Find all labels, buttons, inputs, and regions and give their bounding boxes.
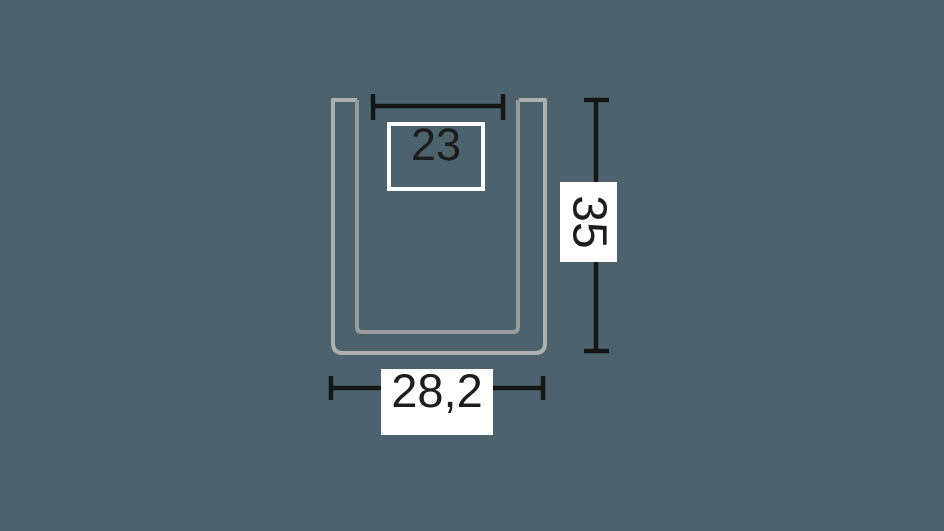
dimension-label-height: 35 bbox=[560, 182, 617, 262]
dimension-top-inner-width bbox=[373, 94, 503, 120]
diagram-canvas: 23 35 28,2 bbox=[0, 0, 944, 531]
dimension-label-outer-width: 28,2 bbox=[381, 369, 493, 435]
dimension-label-inner-width: 23 bbox=[387, 122, 485, 191]
dimension-label-height-text: 35 bbox=[564, 195, 612, 248]
profile-drawing bbox=[0, 0, 944, 531]
